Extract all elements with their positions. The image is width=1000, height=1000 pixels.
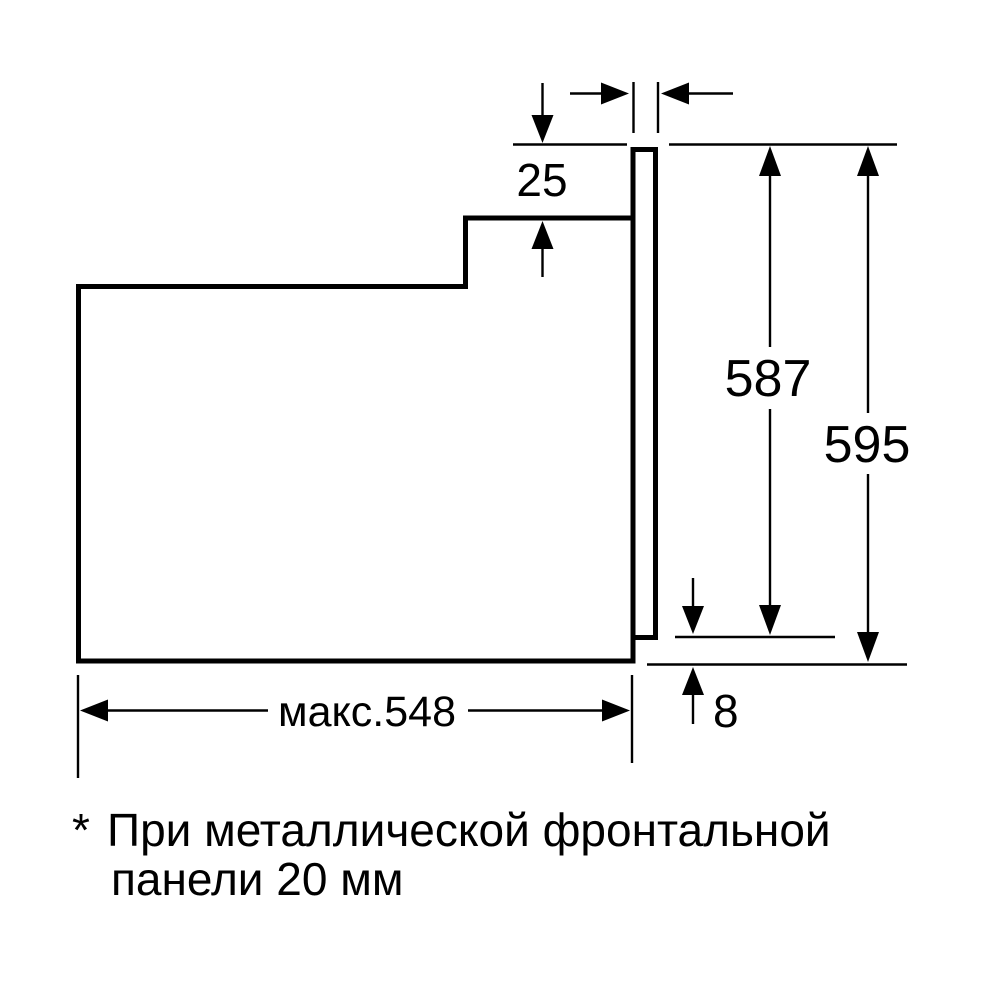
footnote-marker: * (72, 804, 90, 856)
arrow-down-icon (759, 605, 781, 635)
arrow-up-icon (532, 221, 554, 249)
arrow-up-icon (759, 146, 781, 176)
dim-bottom-offset: 8 (682, 578, 739, 737)
arrow-down-icon (532, 115, 554, 143)
front-panel-outline (631, 150, 656, 664)
arrow-down-icon (682, 606, 704, 634)
oven-side-profile (79, 150, 656, 664)
arrow-up-icon (682, 667, 704, 695)
arrow-right-icon (601, 83, 629, 105)
dim-label-overall-height: 595 (824, 416, 911, 474)
dim-body-height: 587 (725, 146, 812, 635)
arrow-right-icon (602, 700, 630, 722)
dim-label-max-depth: макс.548 (278, 688, 456, 736)
dim-panel-thickness (570, 83, 733, 105)
dimension-drawing-page: 25 587 595 (0, 0, 1000, 1000)
arrow-left-icon (661, 83, 689, 105)
arrow-up-icon (857, 146, 879, 176)
dim-top-gap: 25 (516, 83, 567, 277)
dim-max-depth: макс.548 (80, 688, 630, 736)
dim-label-bottom-offset: 8 (713, 685, 739, 737)
reference-lines (78, 82, 907, 778)
dim-label-top-gap: 25 (516, 154, 567, 206)
footnote-line2: панели 20 мм (111, 853, 403, 905)
arrow-left-icon (80, 700, 108, 722)
dim-overall-height: 595 (824, 146, 911, 662)
oven-installation-dimension-drawing: 25 587 595 (0, 0, 1000, 1000)
footnote-line1: При металлической фронтальной (107, 804, 831, 856)
dim-label-body-height: 587 (725, 350, 812, 408)
arrow-down-icon (857, 632, 879, 662)
cabinet-outline (79, 218, 636, 661)
footnote: * При металлической фронтальной панели 2… (72, 804, 831, 905)
